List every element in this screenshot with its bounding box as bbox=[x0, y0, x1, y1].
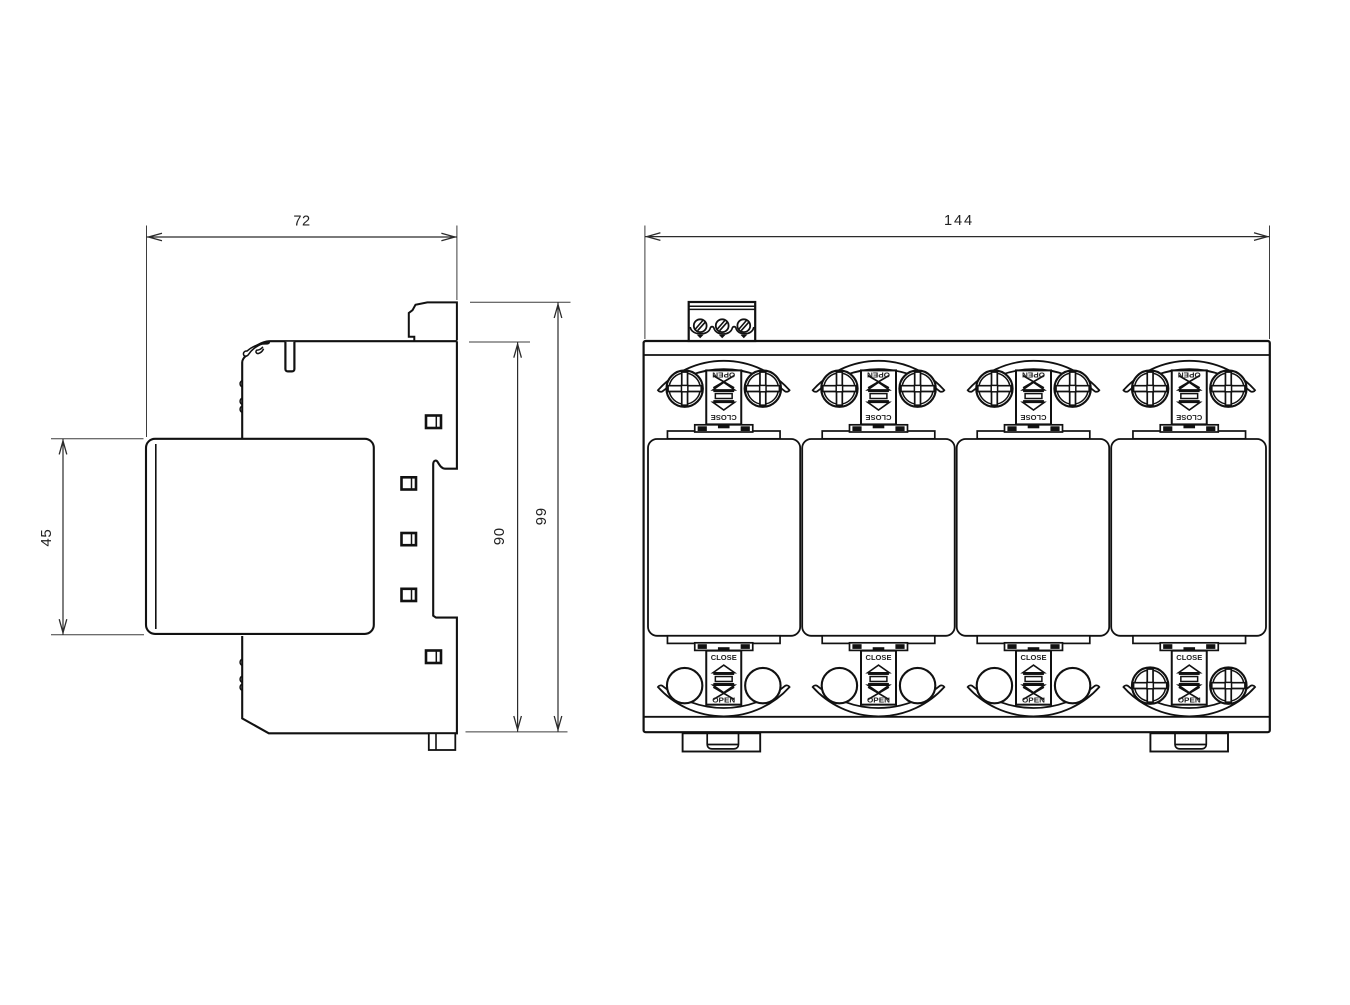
svg-text:99: 99 bbox=[533, 507, 550, 525]
svg-text:45: 45 bbox=[38, 529, 55, 547]
svg-text:72: 72 bbox=[293, 213, 310, 229]
svg-text:144: 144 bbox=[944, 213, 974, 229]
svg-text:90: 90 bbox=[491, 527, 508, 545]
